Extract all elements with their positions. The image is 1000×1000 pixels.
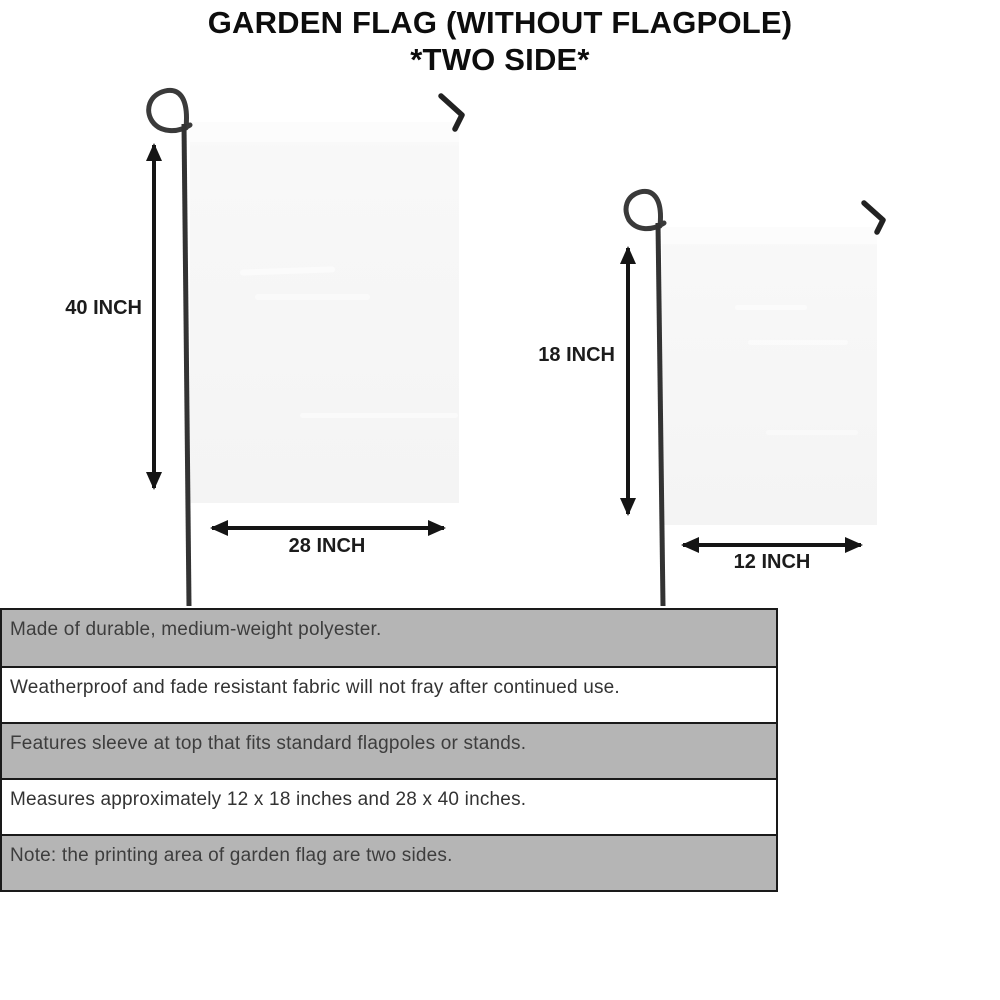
small-flag-height-label: 18 INCH (505, 344, 615, 366)
flag-wrinkle (766, 430, 858, 435)
flag-wrinkle (735, 305, 807, 310)
small-flag-sleeve (662, 227, 877, 244)
feature-row-measurements: Measures approximately 12 x 18 inches an… (2, 778, 776, 834)
large-flag-width-label: 28 INCH (247, 535, 407, 557)
feature-row-sleeve: Features sleeve at top that fits standar… (2, 722, 776, 778)
flag-wrinkle (300, 413, 458, 418)
flag-wrinkle (748, 340, 848, 345)
feature-row-note: Note: the printing area of garden flag a… (2, 834, 776, 890)
large-flagpole (184, 124, 189, 606)
large-flag (190, 122, 459, 503)
small-flag-width-label: 12 INCH (692, 551, 852, 573)
flag-wrinkle (255, 294, 370, 300)
feature-table: Made of durable, medium-weight polyester… (0, 608, 778, 892)
small-flag (662, 227, 877, 525)
small-flag-group (626, 191, 883, 606)
feature-row-weatherproof: Weatherproof and fade resistant fabric w… (2, 666, 776, 722)
garden-flag-infographic: GARDEN FLAG (WITHOUT FLAGPOLE) *TWO SIDE… (0, 0, 1000, 1000)
large-flag-group (149, 90, 462, 606)
large-flag-sleeve (190, 122, 459, 142)
large-flag-height-label: 40 INCH (32, 297, 142, 319)
feature-row-material: Made of durable, medium-weight polyester… (2, 610, 776, 666)
